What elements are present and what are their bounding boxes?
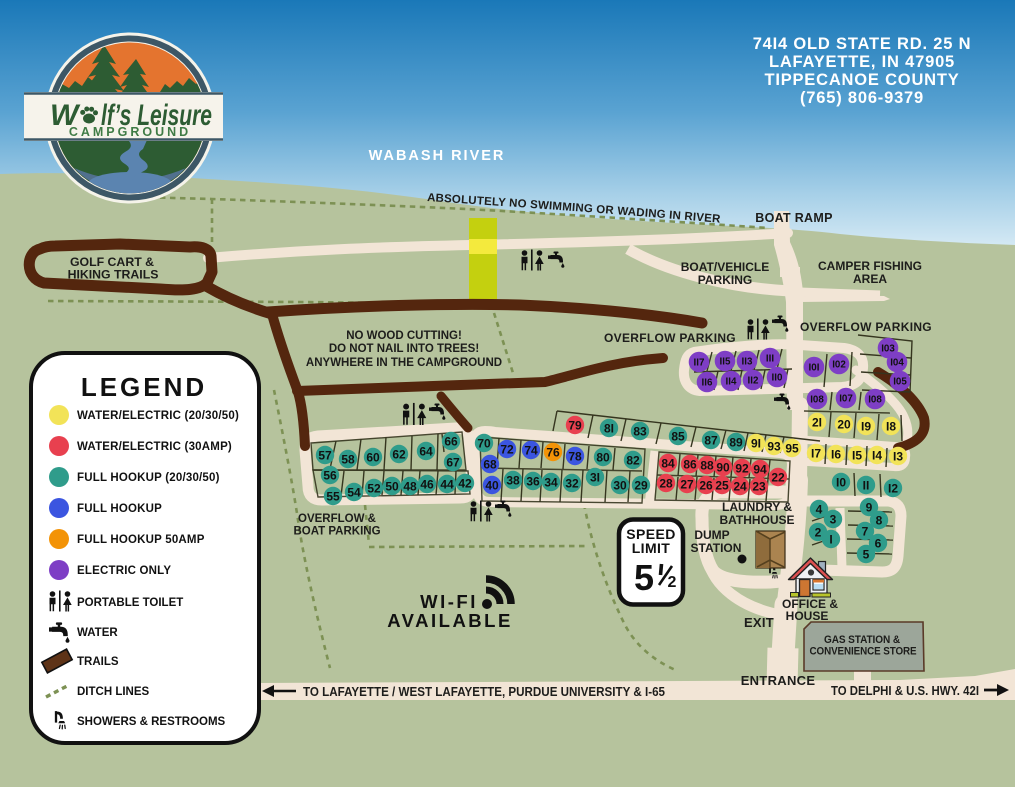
svg-text:8I: 8I — [604, 421, 614, 435]
svg-text:3: 3 — [830, 512, 837, 526]
svg-text:HOUSE: HOUSE — [786, 609, 829, 623]
svg-text:ANYWHERE IN THE CAMPGROUND: ANYWHERE IN THE CAMPGROUND — [306, 357, 502, 369]
svg-text:29: 29 — [634, 478, 648, 492]
svg-text:II5: II5 — [720, 357, 731, 368]
svg-text:38: 38 — [506, 473, 520, 487]
svg-text:TO DELPHI & U.S. HWY. 42I: TO DELPHI & U.S. HWY. 42I — [831, 684, 979, 698]
svg-text:I4: I4 — [872, 448, 882, 462]
svg-text:OVERFLOW PARKING: OVERFLOW PARKING — [604, 331, 736, 345]
svg-text:OVERFLOW PARKING: OVERFLOW PARKING — [800, 320, 932, 334]
svg-text:22: 22 — [771, 470, 785, 484]
svg-text:II6: II6 — [702, 378, 713, 389]
svg-text:84: 84 — [661, 456, 675, 470]
svg-text:LAUNDRY &: LAUNDRY & — [722, 500, 792, 514]
svg-text:I07: I07 — [839, 394, 853, 405]
svg-text:74: 74 — [524, 443, 538, 457]
svg-text:I0: I0 — [836, 475, 846, 489]
svg-text:30: 30 — [613, 478, 627, 492]
svg-text:PORTABLE TOILET: PORTABLE TOILET — [77, 597, 183, 609]
svg-text:74I4 OLD STATE RD. 25 N: 74I4 OLD STATE RD. 25 N — [753, 35, 972, 53]
svg-text:III: III — [766, 354, 774, 365]
svg-text:ELECTRIC ONLY: ELECTRIC ONLY — [77, 565, 171, 577]
svg-text:ENTRANCE: ENTRANCE — [741, 673, 816, 688]
svg-text:85: 85 — [671, 429, 685, 443]
svg-text:94: 94 — [753, 462, 767, 476]
svg-text:23: 23 — [752, 479, 766, 493]
svg-text:67: 67 — [446, 455, 460, 469]
svg-text:5: 5 — [863, 547, 870, 561]
svg-text:89: 89 — [729, 435, 743, 449]
svg-text:95: 95 — [785, 441, 799, 455]
svg-text:DITCH LINES: DITCH LINES — [77, 686, 150, 698]
svg-text:I3: I3 — [893, 449, 903, 463]
svg-text:LEGEND: LEGEND — [81, 372, 207, 402]
svg-text:2: 2 — [815, 525, 822, 539]
svg-text:66: 66 — [444, 434, 458, 448]
svg-text:FULL HOOKUP 50AMP: FULL HOOKUP 50AMP — [77, 534, 205, 546]
svg-text:83: 83 — [633, 424, 647, 438]
svg-text:7: 7 — [862, 524, 869, 538]
svg-text:BOAT RAMP: BOAT RAMP — [755, 211, 832, 225]
svg-text:60: 60 — [366, 450, 380, 464]
svg-text:WATER: WATER — [77, 627, 118, 639]
svg-text:WATER/ELECTRIC (20/30/50): WATER/ELECTRIC (20/30/50) — [77, 410, 239, 422]
svg-text:24: 24 — [733, 479, 747, 493]
svg-text:SHOWERS & RESTROOMS: SHOWERS & RESTROOMS — [77, 716, 226, 728]
svg-text:I5: I5 — [852, 448, 862, 462]
svg-text:I08: I08 — [868, 395, 882, 406]
svg-text:58: 58 — [341, 452, 355, 466]
svg-text:26: 26 — [699, 478, 713, 492]
svg-text:WATER/ELECTRIC (30AMP): WATER/ELECTRIC (30AMP) — [77, 441, 232, 453]
svg-text:20: 20 — [837, 417, 851, 431]
svg-text:8: 8 — [876, 513, 883, 527]
svg-text:36: 36 — [526, 474, 540, 488]
svg-text:II3: II3 — [742, 357, 753, 368]
svg-text:I05: I05 — [893, 377, 907, 388]
svg-text:AREA: AREA — [853, 272, 887, 286]
svg-text:TO LAFAYETTE / WEST LAFAYETTE,: TO LAFAYETTE / WEST LAFAYETTE, PURDUE UN… — [303, 685, 665, 699]
svg-text:I0I: I0I — [809, 363, 820, 374]
svg-text:LAFAYETTE, IN 47905: LAFAYETTE, IN 47905 — [769, 53, 955, 71]
svg-text:CAMPGROUND: CAMPGROUND — [69, 125, 191, 139]
svg-text:II7: II7 — [694, 358, 705, 369]
svg-text:25: 25 — [715, 478, 729, 492]
svg-text:BOAT PARKING: BOAT PARKING — [293, 526, 380, 538]
svg-text:3I: 3I — [590, 470, 600, 484]
svg-text:57: 57 — [318, 448, 332, 462]
svg-text:(765) 806-9379: (765) 806-9379 — [800, 89, 924, 107]
svg-text:FULL HOOKUP: FULL HOOKUP — [77, 503, 162, 515]
svg-text:STATION: STATION — [691, 541, 742, 555]
svg-text:I6: I6 — [831, 447, 841, 461]
svg-text:DO NOT NAIL INTO TREES!: DO NOT NAIL INTO TREES! — [329, 343, 479, 355]
svg-text:62: 62 — [392, 447, 406, 461]
svg-text:80: 80 — [596, 450, 610, 464]
svg-text:II0: II0 — [772, 373, 783, 384]
svg-text:DUMP: DUMP — [694, 528, 729, 542]
svg-text:II: II — [863, 478, 870, 492]
svg-text:93: 93 — [767, 439, 781, 453]
svg-text:I04: I04 — [890, 358, 904, 369]
svg-text:2I: 2I — [812, 415, 822, 429]
svg-text:6: 6 — [875, 536, 882, 550]
svg-text:40: 40 — [485, 478, 499, 492]
svg-text:FULL HOOKUP (20/30/50): FULL HOOKUP (20/30/50) — [77, 472, 220, 484]
svg-text:88: 88 — [700, 458, 714, 472]
svg-text:TIPPECANOE COUNTY: TIPPECANOE COUNTY — [764, 71, 959, 89]
svg-text:AVAILABLE: AVAILABLE — [387, 610, 513, 631]
svg-text:I08: I08 — [810, 395, 824, 406]
svg-text:GAS STATION &: GAS STATION & — [824, 634, 900, 646]
svg-text:76: 76 — [546, 445, 560, 459]
svg-text:28: 28 — [659, 476, 673, 490]
svg-text:87: 87 — [704, 433, 718, 447]
svg-text:9I: 9I — [751, 436, 761, 450]
svg-text:27: 27 — [680, 477, 694, 491]
svg-text:I: I — [829, 532, 832, 546]
svg-text:42: 42 — [458, 476, 472, 490]
svg-text:I7: I7 — [811, 446, 821, 460]
svg-text:I2: I2 — [888, 481, 898, 495]
svg-text:WABASH RIVER: WABASH RIVER — [369, 148, 506, 164]
svg-text:48: 48 — [403, 479, 417, 493]
svg-text:I9: I9 — [861, 419, 871, 433]
svg-text:I8: I8 — [886, 419, 896, 433]
svg-text:46: 46 — [420, 477, 434, 491]
svg-text:79: 79 — [568, 418, 582, 432]
svg-text:CAMPER FISHING: CAMPER FISHING — [818, 259, 922, 273]
svg-text:34: 34 — [544, 475, 558, 489]
svg-text:BATHHOUSE: BATHHOUSE — [719, 513, 794, 527]
svg-text:4: 4 — [816, 502, 823, 516]
svg-text:CONVENIENCE STORE: CONVENIENCE STORE — [810, 646, 917, 658]
svg-text:32: 32 — [565, 476, 579, 490]
svg-text:HIKING TRAILS: HIKING TRAILS — [68, 268, 159, 282]
svg-text:TRAILS: TRAILS — [77, 656, 119, 668]
svg-text:92: 92 — [735, 461, 749, 475]
svg-text:86: 86 — [683, 457, 697, 471]
svg-text:54: 54 — [347, 485, 361, 499]
svg-text:50: 50 — [385, 479, 399, 493]
svg-text:82: 82 — [626, 453, 640, 467]
svg-text:BOAT/VEHICLE: BOAT/VEHICLE — [681, 260, 769, 274]
svg-text:EXIT: EXIT — [744, 615, 774, 630]
svg-text:WI-FI: WI-FI — [420, 591, 478, 612]
svg-text:52: 52 — [367, 481, 381, 495]
svg-text:II2: II2 — [748, 376, 759, 387]
svg-text:70: 70 — [477, 436, 491, 450]
svg-text:OVERFLOW &: OVERFLOW & — [298, 513, 376, 525]
svg-text:44: 44 — [440, 477, 454, 491]
svg-text:72: 72 — [500, 442, 514, 456]
svg-text:55: 55 — [326, 489, 340, 503]
svg-text:78: 78 — [568, 449, 582, 463]
svg-text:2: 2 — [668, 574, 677, 591]
svg-text:LIMIT: LIMIT — [632, 540, 671, 556]
svg-text:56: 56 — [323, 468, 337, 482]
svg-text:II4: II4 — [726, 377, 737, 388]
svg-text:68: 68 — [483, 457, 497, 471]
svg-text:PARKING: PARKING — [698, 273, 752, 287]
svg-text:5: 5 — [634, 557, 654, 598]
svg-text:9: 9 — [866, 500, 873, 514]
svg-text:NO WOOD CUTTING!: NO WOOD CUTTING! — [346, 330, 462, 342]
svg-text:I02: I02 — [832, 360, 846, 371]
svg-text:64: 64 — [419, 444, 433, 458]
svg-text:90: 90 — [716, 460, 730, 474]
